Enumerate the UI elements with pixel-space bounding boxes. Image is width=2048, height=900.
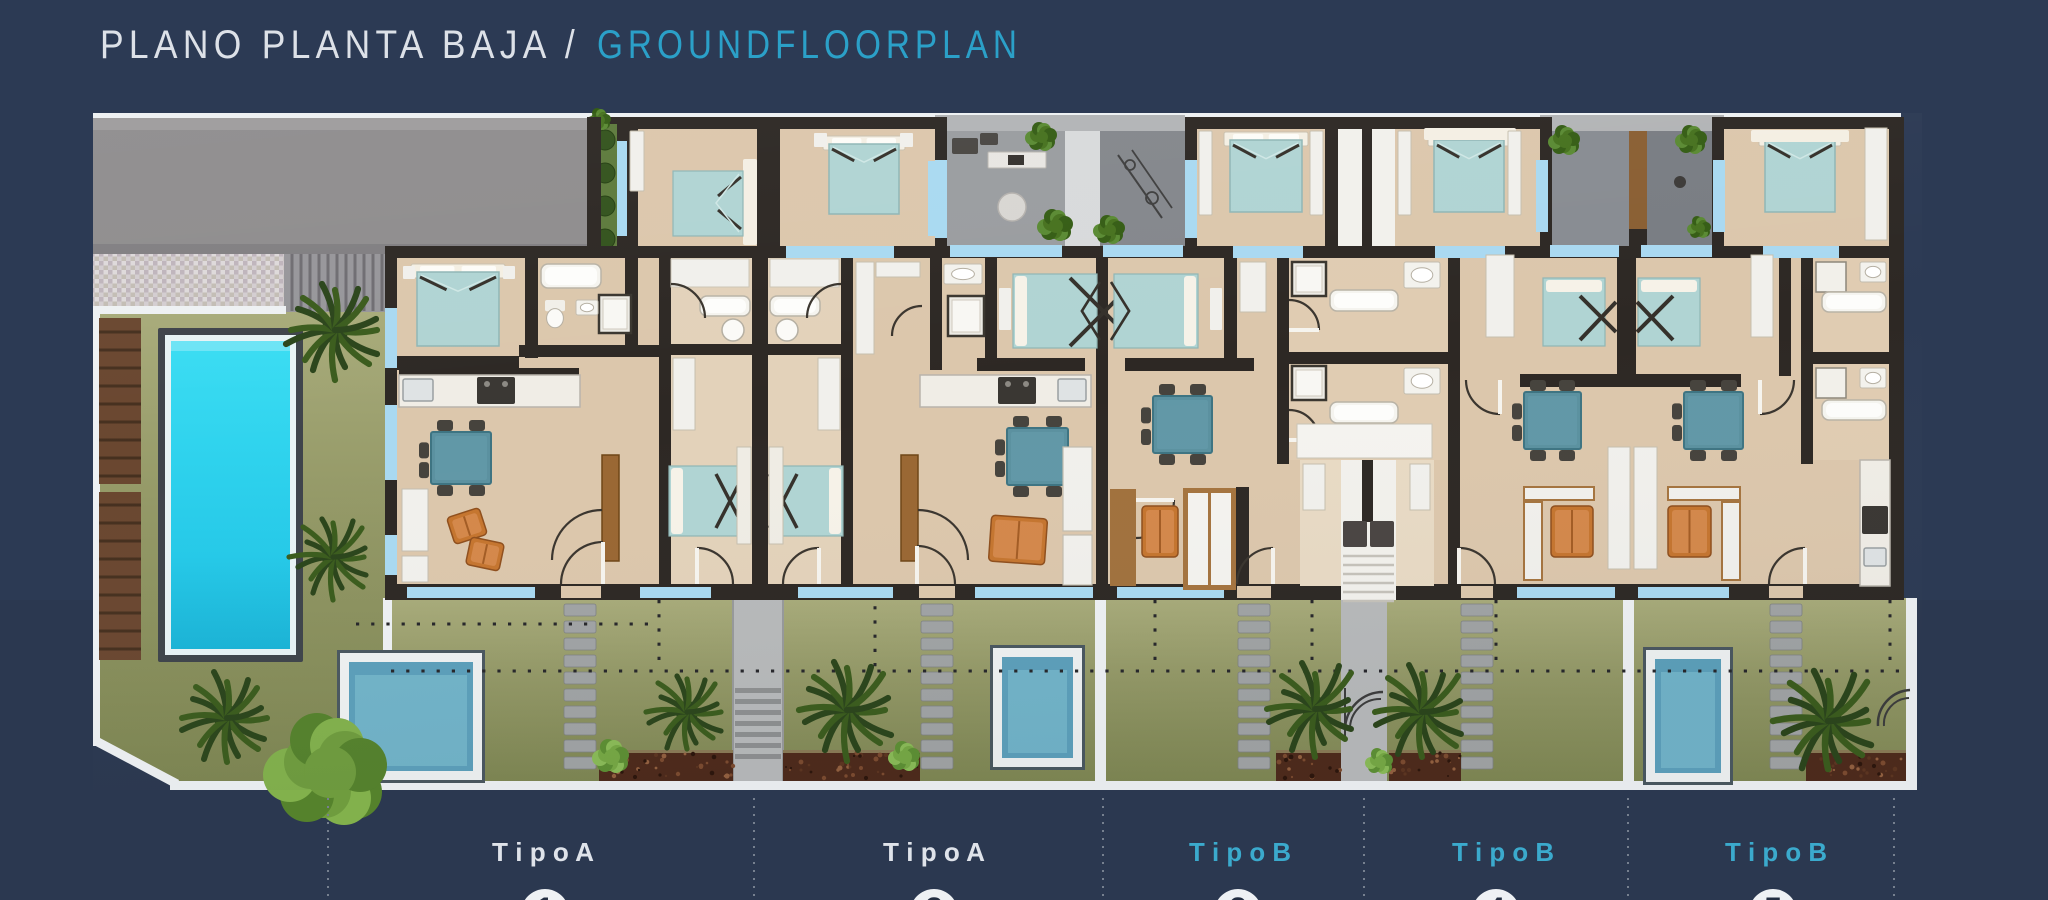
svg-text:T i p o B: T i p o B — [1725, 837, 1827, 867]
svg-text:T i p o B: T i p o B — [1452, 837, 1554, 867]
svg-text:2: 2 — [925, 891, 943, 900]
svg-text:3: 3 — [1229, 891, 1247, 900]
svg-text:T i p o A: T i p o A — [883, 837, 985, 867]
svg-text:T i p o A: T i p o A — [492, 837, 594, 867]
svg-text:GROUNDFLOORPLAN: GROUNDFLOORPLAN — [597, 23, 1022, 67]
svg-text:PLANO PLANTA BAJA /: PLANO PLANTA BAJA / — [100, 23, 580, 67]
svg-text:1: 1 — [536, 891, 554, 900]
svg-text:T i p o B: T i p o B — [1189, 837, 1291, 867]
svg-text:4: 4 — [1487, 891, 1505, 900]
svg-text:5: 5 — [1764, 891, 1782, 900]
